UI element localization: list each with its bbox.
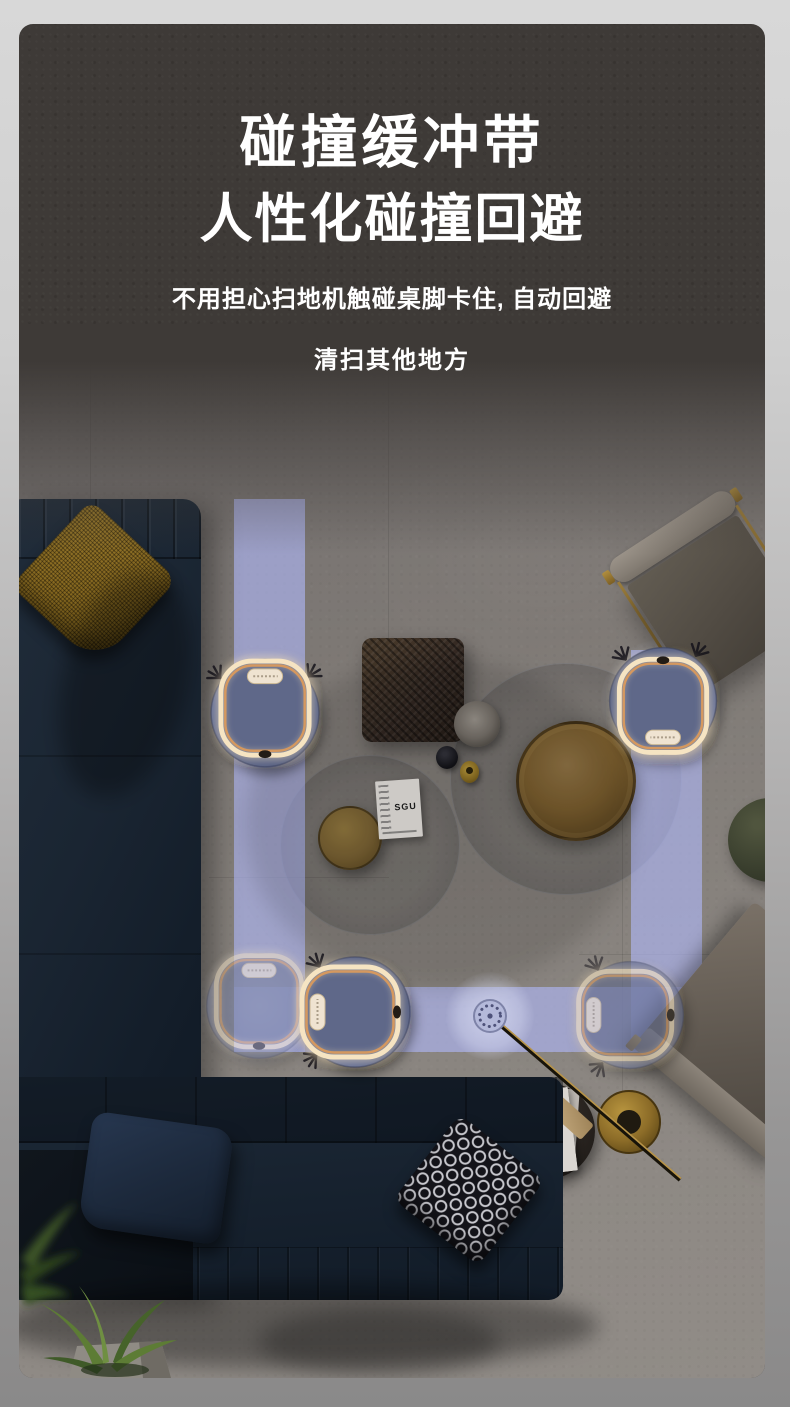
- magazine: SGU: [375, 779, 423, 840]
- title-line-1: 碰撞缓冲带: [19, 112, 765, 175]
- floor-seam: [388, 354, 389, 674]
- gold-vase: [460, 761, 479, 783]
- lamp-base-halo: [446, 972, 534, 1060]
- woven-ottoman: [362, 638, 464, 742]
- navy-pillow: [78, 1111, 235, 1246]
- subtitle-line-2: 清扫其他地方: [19, 340, 765, 375]
- path-halo: [197, 944, 321, 1068]
- path-halo: [203, 651, 327, 775]
- banner-header: 碰撞缓冲带 人性化碰撞回避 不用担心扫地机触碰桌脚卡住, 自动回避 清扫其他地方: [19, 24, 765, 375]
- bronze-tray-table: [516, 721, 636, 841]
- armchair-leg: [673, 690, 687, 706]
- black-cup: [436, 746, 458, 769]
- magazine-title: SGU: [394, 801, 417, 813]
- marketing-page: 碰撞缓冲带 人性化碰撞回避 不用担心扫地机触碰桌脚卡住, 自动回避 清扫其他地方: [0, 0, 790, 1407]
- product-banner-card: 碰撞缓冲带 人性化碰撞回避 不用担心扫地机触碰桌脚卡住, 自动回避 清扫其他地方: [19, 24, 765, 1378]
- subtitle-line-1: 不用担心扫地机触碰桌脚卡住, 自动回避: [19, 279, 765, 314]
- metal-plate: [454, 701, 500, 747]
- title-line-2: 人性化碰撞回避: [19, 191, 765, 249]
- small-wood-table: [318, 806, 382, 870]
